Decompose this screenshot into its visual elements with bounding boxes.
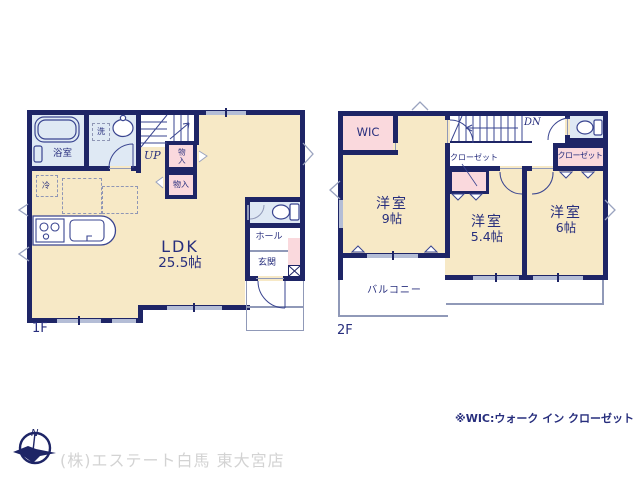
room6-label-block: 洋室 6帖 bbox=[528, 205, 604, 235]
room6-size: 6帖 bbox=[528, 221, 604, 235]
wic-note: ※WIC:ウォーク イン クローゼット bbox=[455, 413, 634, 426]
stairwell-2f bbox=[450, 116, 565, 143]
balcony-label: バルコニー bbox=[352, 285, 437, 297]
balcony-strip-outline bbox=[446, 280, 604, 305]
floor2-label: 2F bbox=[337, 324, 353, 339]
room54-name: 洋室 bbox=[450, 214, 524, 230]
floorplan-page: { "palette": { "wall_navy": "#1e2566", "… bbox=[0, 0, 640, 480]
compass-icon: N bbox=[10, 424, 62, 476]
room6-name: 洋室 bbox=[528, 205, 604, 221]
room9-size: 9帖 bbox=[352, 212, 432, 226]
room9-name: 洋室 bbox=[352, 196, 432, 212]
closet-left-label: クローゼット bbox=[450, 153, 498, 162]
stairs-dn-label: DN bbox=[524, 117, 541, 129]
wic-label: WIC bbox=[343, 126, 393, 139]
room9-label-block: 洋室 9帖 bbox=[352, 196, 432, 226]
closet-right-label: クローゼット bbox=[556, 151, 604, 160]
footer: N (株)エステート白馬 東大宮店 ※WIC:ウォーク イン クローゼット bbox=[0, 408, 640, 480]
room54-size: 5.4帖 bbox=[450, 230, 524, 244]
company-name: (株)エステート白馬 東大宮店 bbox=[60, 452, 285, 470]
closet-left-box bbox=[449, 169, 489, 194]
balcony-under-room9 bbox=[343, 258, 445, 280]
room54-label-block: 洋室 5.4帖 bbox=[450, 214, 524, 244]
